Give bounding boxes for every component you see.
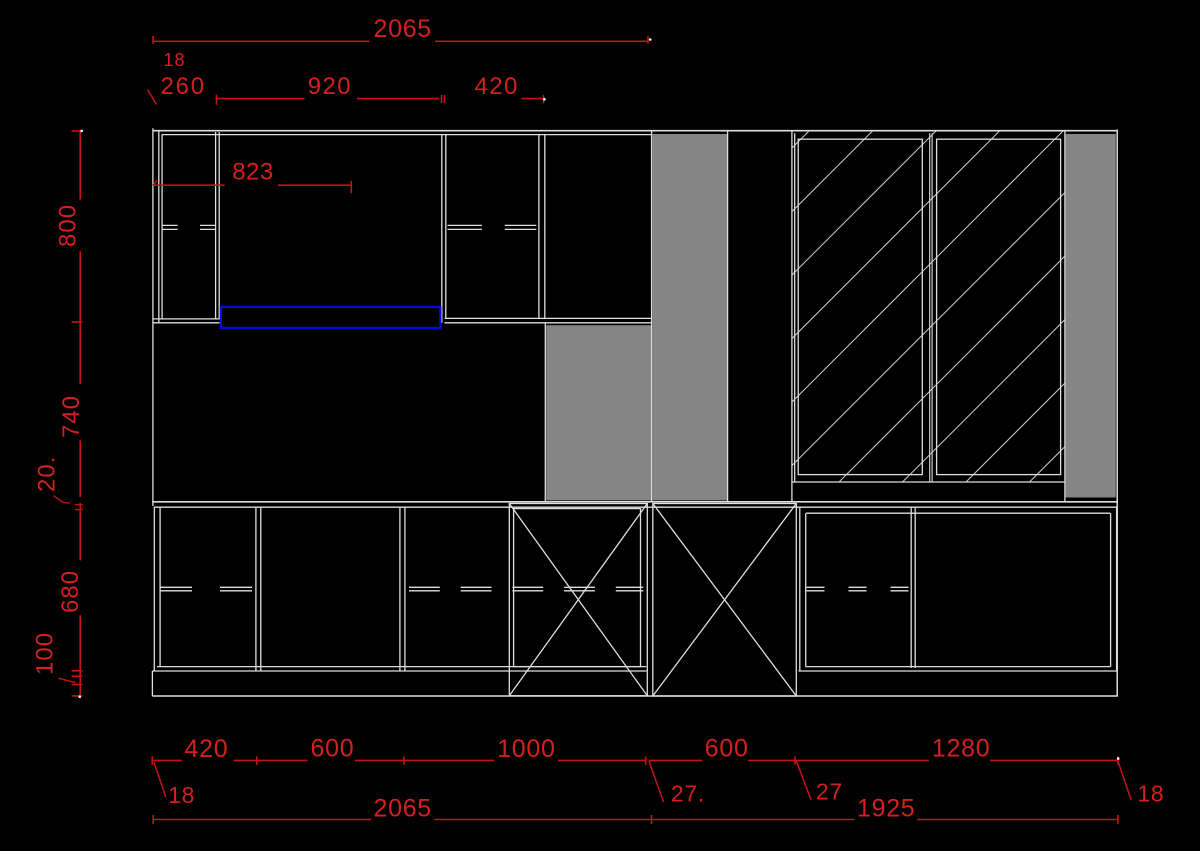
svg-text:920: 920 (308, 73, 352, 100)
svg-text:800: 800 (55, 204, 82, 247)
svg-text:740: 740 (58, 395, 85, 438)
svg-text:27.: 27. (671, 781, 705, 807)
svg-text:18: 18 (1137, 781, 1164, 807)
svg-text:1000: 1000 (497, 735, 555, 763)
svg-text:2065: 2065 (374, 795, 432, 823)
svg-text:1280: 1280 (932, 735, 990, 763)
svg-text:260: 260 (161, 73, 206, 100)
svg-text:600: 600 (311, 735, 355, 763)
svg-text:420: 420 (475, 73, 519, 100)
svg-text:18: 18 (168, 782, 195, 808)
svg-text:823: 823 (232, 158, 274, 185)
svg-text:100: 100 (32, 632, 59, 675)
svg-text:1925: 1925 (857, 795, 915, 823)
svg-text:20.: 20. (34, 456, 61, 492)
svg-text:420: 420 (185, 735, 229, 763)
svg-text:600: 600 (705, 735, 749, 763)
svg-text:27: 27 (816, 779, 843, 805)
svg-text:2065: 2065 (374, 15, 432, 43)
svg-text:18: 18 (164, 50, 186, 70)
svg-text:680: 680 (57, 570, 84, 613)
